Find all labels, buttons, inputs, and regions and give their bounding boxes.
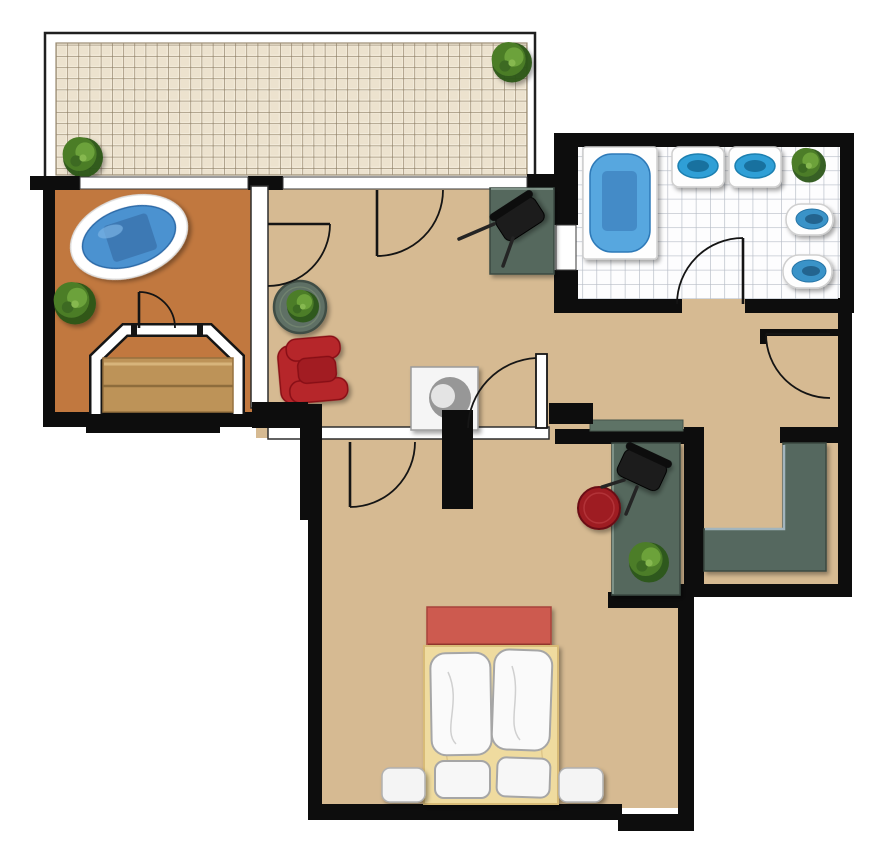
wall-office-divider [684, 427, 704, 595]
wall-office-bottom [680, 584, 848, 597]
armchair-seat [297, 356, 337, 384]
window-bathroom [556, 225, 576, 270]
wall-bath-left-a [554, 140, 578, 225]
glass-sauna-living [251, 186, 268, 408]
bedside-mat-right [559, 768, 603, 802]
wall-sofa-top [780, 427, 840, 443]
duvet-right [491, 649, 552, 751]
wall-bedroom-right [678, 592, 694, 831]
sauna-frame-joint-a [131, 324, 137, 337]
wall-bath-bottom-b [745, 299, 854, 313]
bathtub-seat [602, 171, 637, 231]
bathroom-threshold [682, 299, 745, 313]
duvet-left [430, 652, 492, 755]
bed-pillow-left [435, 761, 490, 798]
sink-2-drain [744, 160, 766, 172]
toilet-2-bowl [802, 266, 820, 276]
bed-pillow-right [496, 757, 550, 798]
office-shelf [590, 420, 683, 431]
toilet-1-bowl [805, 214, 823, 224]
shape-root [30, 33, 854, 831]
wall-bedroom-bottom [308, 804, 622, 820]
wall-bath-right [840, 133, 854, 313]
wall-left [43, 176, 55, 426]
floor-plan [0, 0, 871, 855]
floor-plan-canvas [0, 0, 871, 855]
door-living-hall-leaf [536, 354, 547, 428]
bed-headboard [427, 607, 551, 648]
washbasin-bowl-highlight [431, 384, 455, 408]
window-terrace-2 [283, 177, 527, 189]
sink-1-drain [687, 160, 709, 172]
terrace-tile-floor [56, 43, 527, 175]
sauna-frame-joint-b [197, 324, 203, 337]
wall-bed-hall-stub [549, 403, 593, 424]
wall-sauna-foot [86, 424, 220, 433]
wall-bath-left-b [554, 270, 578, 313]
wall-corner-block [252, 402, 308, 428]
window-terrace-1 [80, 177, 248, 189]
wall-bedroom-left-top [300, 404, 322, 520]
wall-bedroom-bottom-step [618, 814, 694, 831]
bedside-mat-left [382, 768, 425, 802]
wall-right-lower [838, 298, 852, 597]
wall-entry-jamb [760, 329, 766, 344]
wall-bath-top [554, 133, 854, 147]
